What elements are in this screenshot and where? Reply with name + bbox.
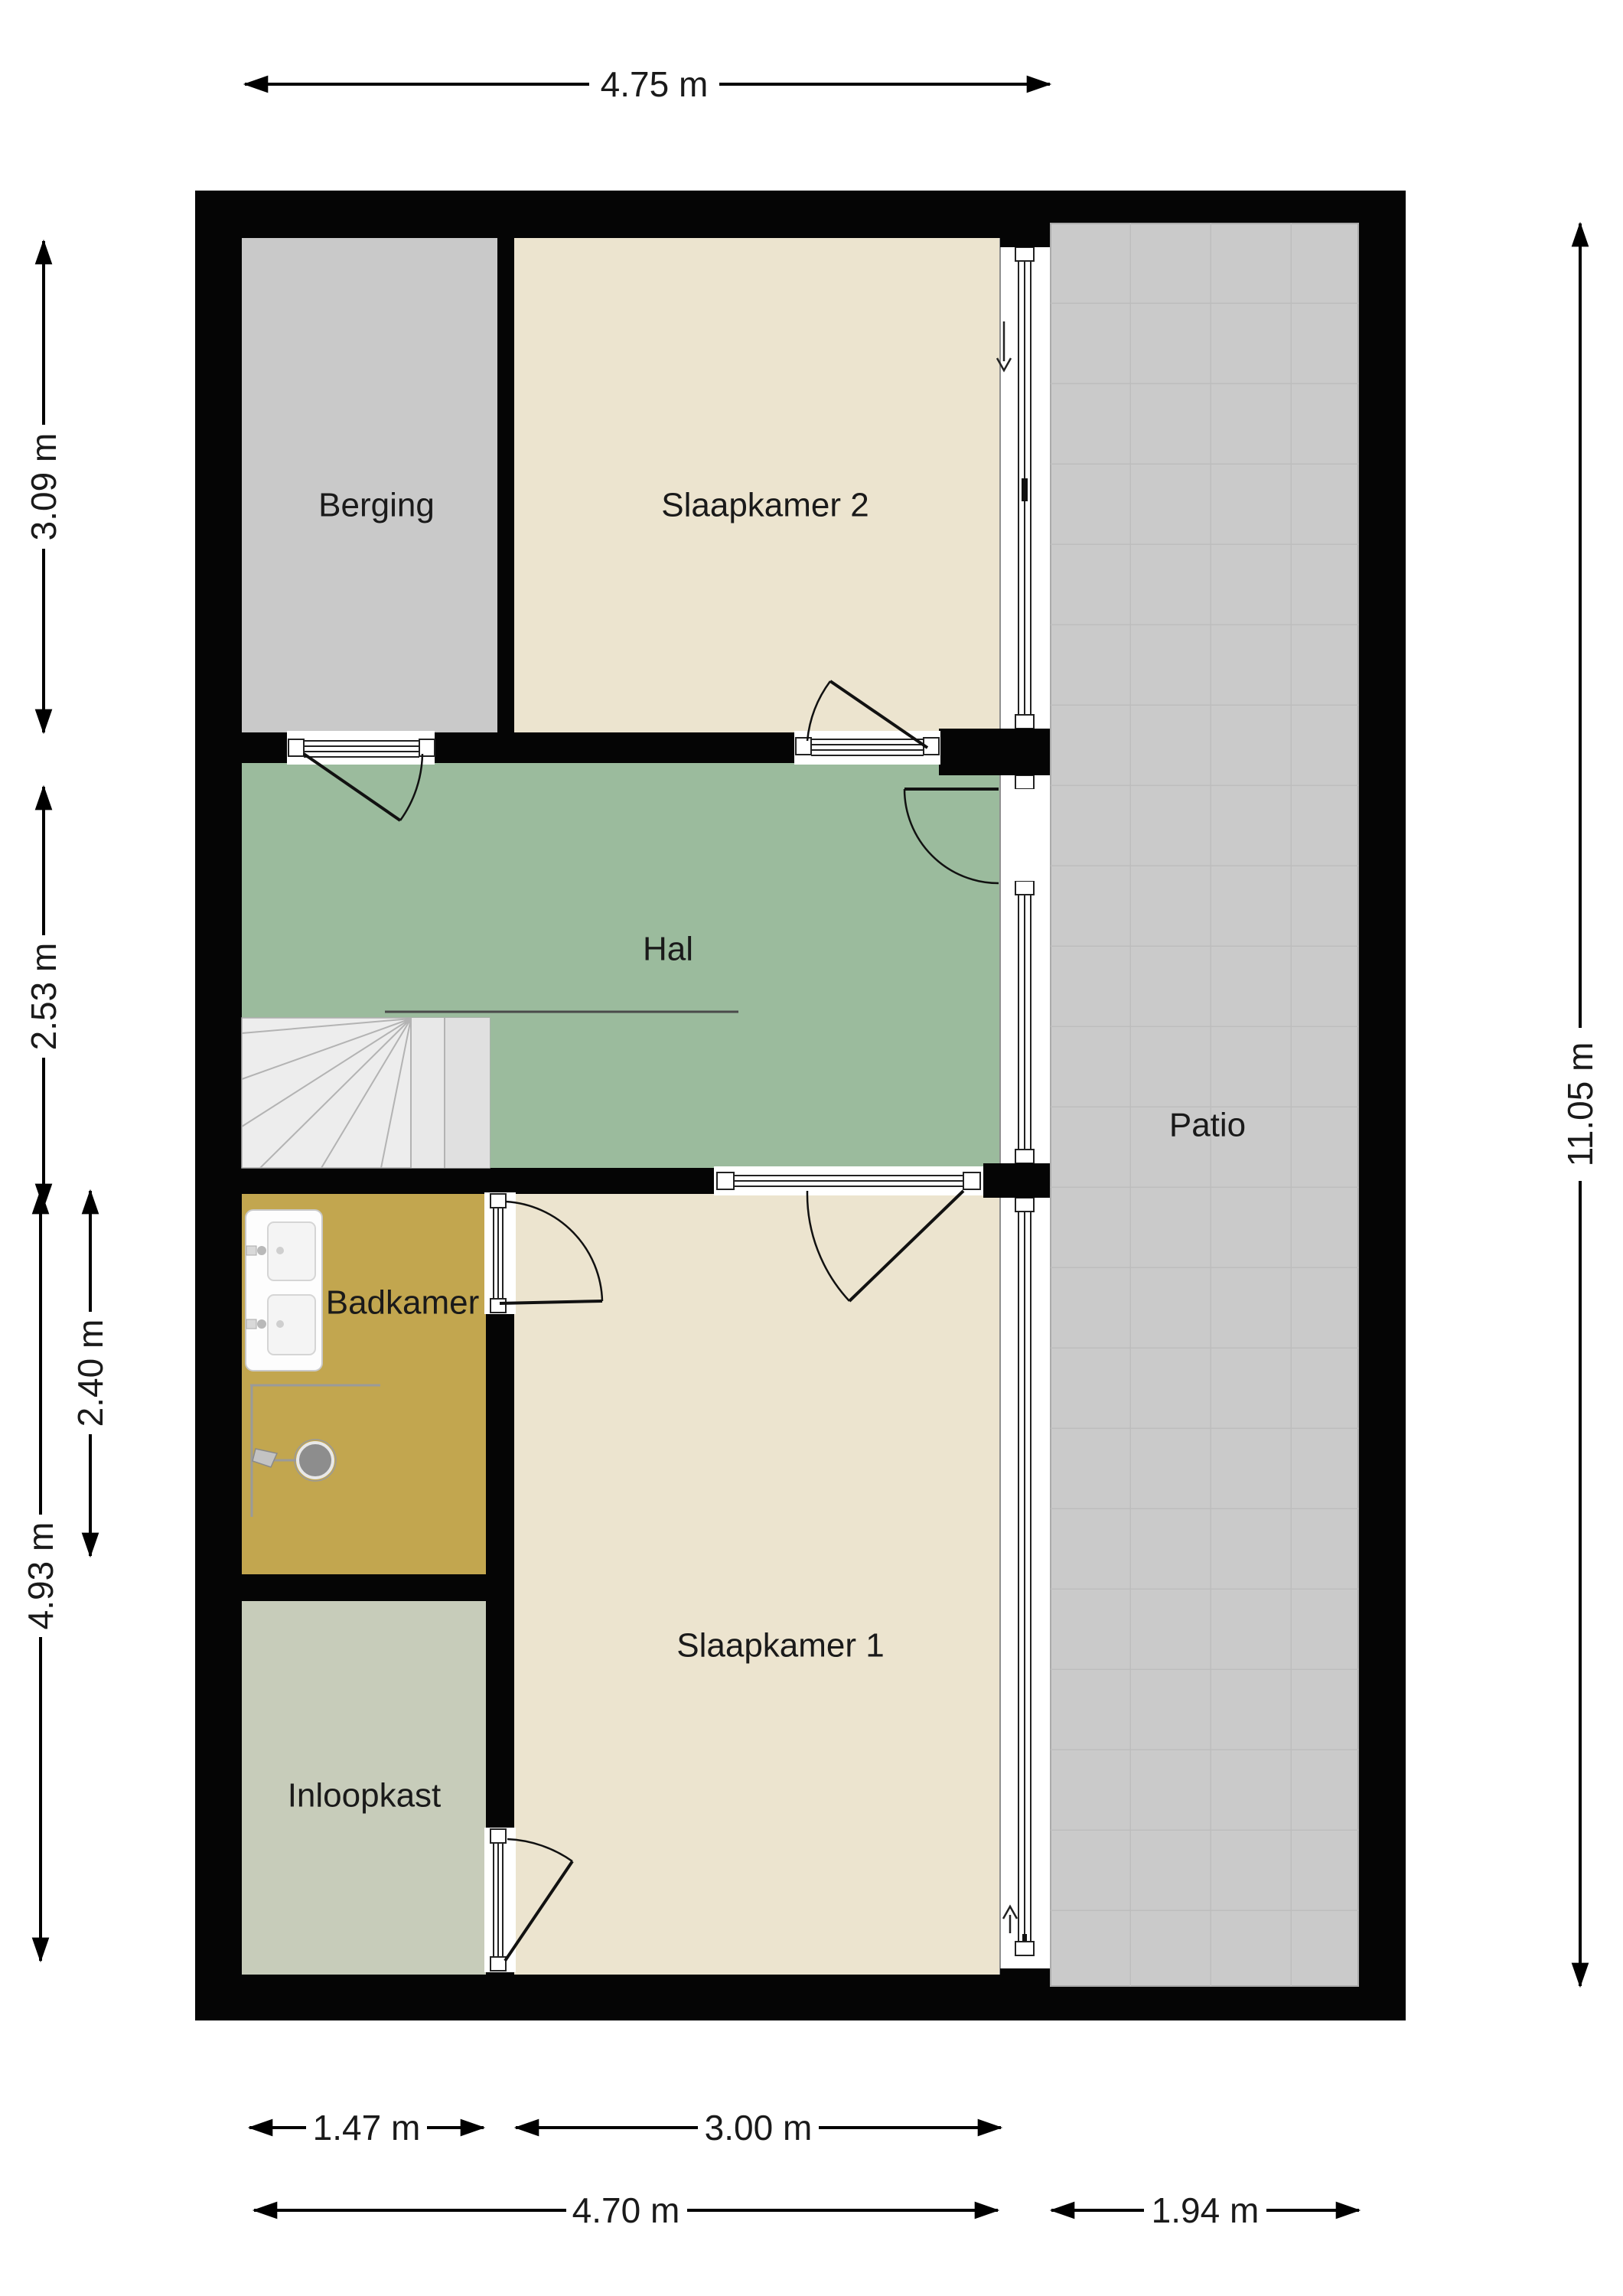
dimension-top-width: 4.75 m bbox=[245, 64, 1050, 104]
label-berging: Berging bbox=[318, 487, 435, 524]
bathroom-double-sink bbox=[246, 1210, 322, 1371]
room-berging-floor bbox=[242, 238, 497, 732]
floorplan-page: Berging Slaapkamer 2 Hal Badkamer Slaapk… bbox=[0, 0, 1623, 2296]
svg-text:3.00 m: 3.00 m bbox=[705, 2108, 813, 2148]
svg-text:4.70 m: 4.70 m bbox=[572, 2190, 680, 2230]
label-badkamer: Badkamer bbox=[326, 1284, 480, 1322]
svg-text:4.93 m: 4.93 m bbox=[21, 1522, 60, 1630]
dimension-patio-width: 1.94 m bbox=[1051, 2190, 1359, 2230]
window-tick-lower bbox=[1022, 1934, 1027, 1942]
room-slaapkamer2-floor bbox=[514, 238, 1000, 732]
patio-tile-grid bbox=[1051, 223, 1358, 1986]
label-slaapkamer2: Slaapkamer 2 bbox=[661, 487, 869, 524]
label-slaapkamer1: Slaapkamer 1 bbox=[676, 1627, 884, 1665]
svg-text:4.75 m: 4.75 m bbox=[601, 64, 709, 104]
label-hal: Hal bbox=[643, 931, 693, 968]
floorplan-canvas: Berging Slaapkamer 2 Hal Badkamer Slaapk… bbox=[0, 0, 1623, 2296]
label-inloopkast: Inloopkast bbox=[288, 1777, 442, 1815]
svg-text:2.40 m: 2.40 m bbox=[70, 1319, 110, 1427]
svg-text:11.05 m: 11.05 m bbox=[1560, 1042, 1600, 1167]
svg-text:2.53 m: 2.53 m bbox=[24, 943, 64, 1051]
dimension-hal-height: 2.53 m bbox=[24, 787, 64, 1207]
dimension-interior-width: 4.70 m bbox=[254, 2190, 998, 2230]
shower-drain bbox=[298, 1443, 333, 1478]
label-patio: Patio bbox=[1169, 1107, 1246, 1144]
svg-text:3.09 m: 3.09 m bbox=[24, 433, 64, 541]
dimension-berging-height: 3.09 m bbox=[24, 241, 64, 732]
dimension-slaapkamer1-width: 3.00 m bbox=[516, 2108, 1001, 2148]
dimension-total-height: 11.05 m bbox=[1560, 223, 1600, 1986]
svg-text:1.94 m: 1.94 m bbox=[1152, 2190, 1260, 2230]
window-tick-upper bbox=[1022, 478, 1028, 501]
dimension-inloopkast-width: 1.47 m bbox=[249, 2108, 484, 2148]
dimension-lower-left-height: 4.93 m bbox=[21, 1191, 60, 1961]
room-slaapkamer1-floor bbox=[514, 1194, 1000, 1975]
dimension-badkamer-height: 2.40 m bbox=[70, 1191, 110, 1556]
svg-text:1.47 m: 1.47 m bbox=[313, 2108, 421, 2148]
